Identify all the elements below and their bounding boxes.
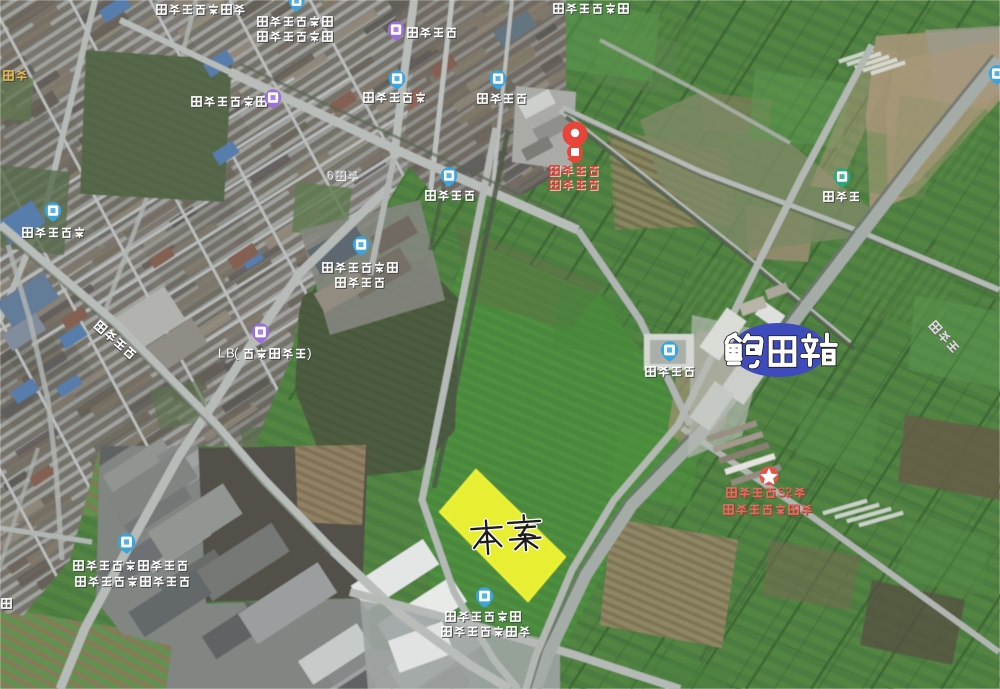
svg-text:6: 6 bbox=[326, 168, 333, 182]
svg-text:2: 2 bbox=[785, 485, 792, 500]
svg-text:(: ( bbox=[234, 346, 239, 361]
svg-text:): ) bbox=[307, 346, 311, 361]
svg-text:L: L bbox=[218, 346, 225, 361]
